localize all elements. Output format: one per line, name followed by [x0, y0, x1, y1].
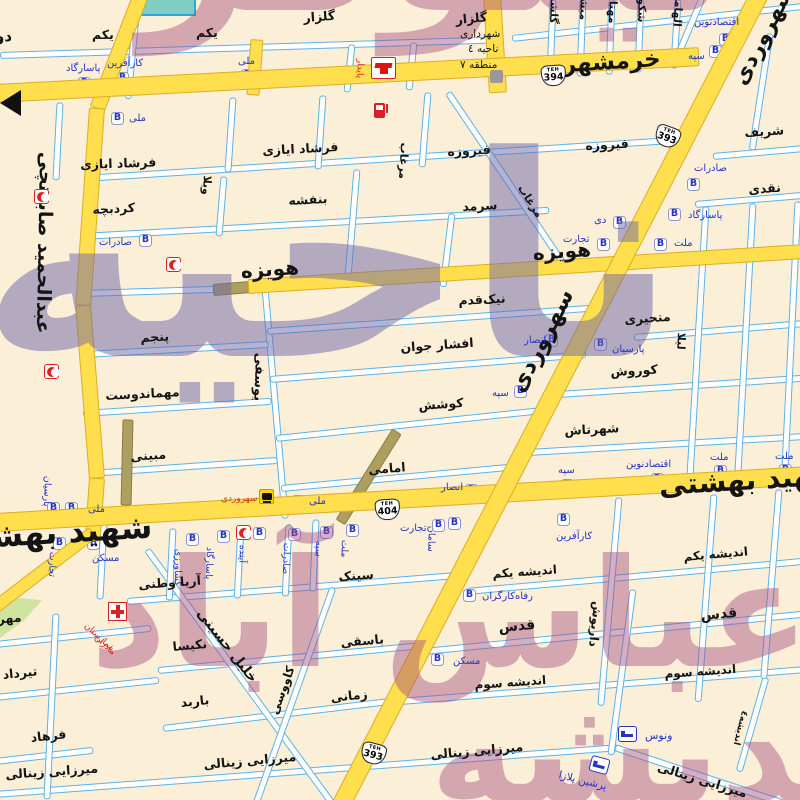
bank-karafarin: کارآفرین [556, 531, 592, 542]
label-brt-sohrevardi: سهروردی [221, 495, 257, 505]
label-yousefi: یوسفی [249, 352, 266, 401]
label-leila: لیلا [673, 332, 687, 350]
route-shield-394: TEH394 [540, 64, 566, 87]
label-kordbacheh: کردبچه [92, 201, 135, 218]
bank-ansar: انصار [441, 482, 463, 493]
label-dovom: دوم [0, 28, 12, 45]
label-municipality-2: ناحیه ٤ [468, 43, 498, 55]
bank-icon: B [557, 513, 570, 526]
bank-sepah: سپه [492, 388, 509, 399]
bank-pasargad: پاسارگاد [66, 63, 100, 74]
bank-eghtesad: اقتصادنوین [626, 459, 671, 470]
label-farhad: فرهاد [30, 727, 67, 745]
red-crescent-icon [34, 189, 49, 204]
label-golzar: گلزار [455, 10, 488, 27]
label-banafsheh: بنفشه [288, 192, 328, 208]
label-shahrtash: شهرتاش [564, 421, 620, 438]
label-golshan: گلشن [546, 0, 560, 24]
red-crescent-icon [166, 257, 181, 272]
bank-melli: ملی [238, 56, 255, 67]
label-firouzeh: فیروزه [585, 137, 629, 154]
brt-station-icon [259, 489, 274, 504]
bank-saderat: صادرات [694, 163, 727, 174]
label-villa: ویلا [199, 175, 213, 195]
gas-station-icon [374, 103, 385, 118]
label-mobini: مبینی [130, 448, 167, 465]
label-emami: امامی [368, 460, 406, 477]
label-yekom: یکم [92, 28, 114, 42]
school-icon [371, 57, 396, 79]
label-farshad: فرشاد ایازی [80, 155, 157, 172]
red-crescent-icon [236, 525, 251, 540]
bank-tejarat: تجارت [400, 523, 427, 534]
bank-maskan: مسکن [453, 656, 480, 667]
bank-keshavarzi: کشاورزی [171, 549, 183, 586]
label-municipality-1: شهرداری [460, 28, 500, 40]
bank-mellat: ملت [775, 451, 794, 462]
label-sharif: شریف [744, 123, 785, 140]
label-mirzaei: میرزایی زینالی [5, 762, 99, 783]
label-khorramshahr: خرمشهر [562, 46, 661, 78]
street-sharif [713, 145, 800, 160]
bank-pasargad: پاسارگاد [688, 210, 722, 221]
label-shokouh: شکوه [634, 0, 648, 23]
bank-sepah: سپه [558, 465, 575, 476]
bank-mellat: ملت [710, 452, 729, 463]
bank-parsian: پارسیان [612, 344, 644, 355]
label-sarmad: سرمد [462, 198, 498, 214]
bank-dey: دی [594, 215, 606, 226]
route-shield-404: TEH404 [374, 498, 400, 521]
label-sink: سینک [338, 568, 374, 585]
label-mahtab: مهتاب [605, 0, 619, 24]
label-nikghadam: نیک‌قدم [458, 292, 506, 309]
bank-pasargad: پاسارگاد [202, 547, 214, 580]
label-ghods: قدس [498, 617, 536, 636]
bank-melli: ملی [309, 496, 326, 507]
label-kourosh: کوروش [610, 363, 658, 380]
bank-sepah: سپه [688, 51, 705, 62]
bank-parsian: پارسیان [40, 476, 52, 507]
bank-eghtesad: اقتصادنوین [694, 17, 739, 28]
road-continuation-arrow [0, 90, 21, 116]
bank-karafarin: کارآفرین [107, 58, 143, 69]
street-mobini [90, 457, 278, 477]
label-morghab: مرغاب [395, 142, 410, 179]
label-tirdad: تیرداد [2, 664, 38, 682]
label-ghods: قدس [700, 605, 738, 624]
bank-sepah: سپه [312, 541, 323, 557]
bank-tejarat: تجارت [563, 234, 590, 245]
label-golzar: گلزار [303, 9, 336, 26]
bank-tejarat: تجارت [46, 552, 57, 578]
label-elhami: الهامی [670, 0, 685, 27]
watermark-andisheh: اندیشه [430, 680, 800, 800]
bank-mellat: ملت [338, 540, 349, 558]
bank-icon: B [687, 178, 700, 191]
bank-ayandeh: آینده [236, 545, 247, 563]
street-naghdi [695, 192, 800, 208]
label-mehrdad: مهرداد [0, 610, 22, 628]
municipality-icon [490, 70, 503, 83]
bank-mellat: ملت [674, 238, 693, 249]
bank-saderat: صادرات [99, 237, 132, 248]
label-venus-hotel: ونوس [645, 730, 672, 742]
label-yekom: یکم [196, 26, 218, 40]
bank-melli: ملی [88, 504, 105, 515]
bank-saman: سامان [425, 526, 436, 552]
red-crescent-icon [44, 364, 59, 379]
bank-ansar: انصار [524, 335, 546, 346]
bank-saderat: صادرات [279, 543, 291, 575]
label-nakisa: نکیسا [172, 637, 208, 654]
label-naghdi: نقدی [748, 181, 781, 198]
label-panjom: پنجم [140, 330, 169, 346]
bank-melli: ملی [129, 113, 146, 124]
map-canvas[interactable]: نیلوفر ناحیه عباس آباد اندیشه TEH394 TEH… [0, 0, 800, 800]
label-paydar-school: پایدار [353, 59, 364, 79]
bank-refah: رفاه‌کارگران [482, 591, 533, 602]
label-barbod: باربد [180, 693, 210, 710]
label-mobasher: مبشر [576, 0, 590, 20]
hotel-icon-venus [618, 726, 637, 742]
hospital-icon [108, 602, 127, 621]
label-hoveyzeh: هویزه [240, 256, 300, 283]
label-firouzeh: فیروزه [447, 143, 491, 160]
bank-maskan: مسکن [92, 553, 119, 564]
label-sabounchi: عبدالحمید صابونچی [31, 152, 56, 334]
